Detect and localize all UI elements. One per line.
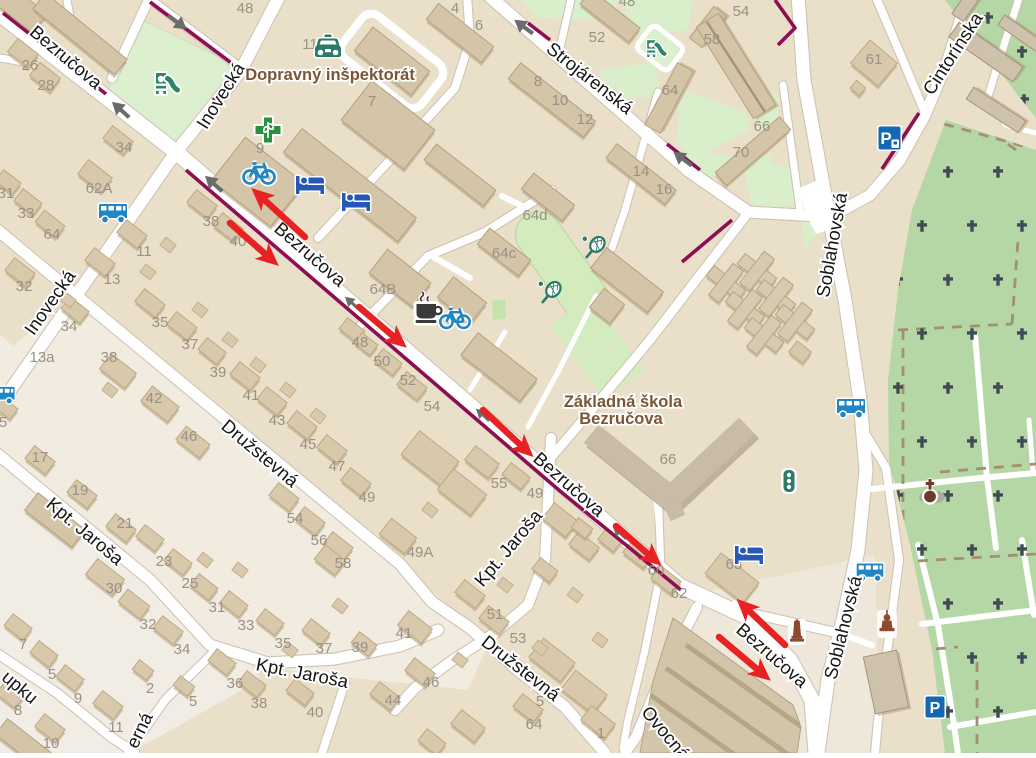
- svg-text:13: 13: [104, 271, 121, 288]
- svg-text:40: 40: [307, 704, 324, 721]
- svg-text:16: 16: [656, 181, 673, 198]
- svg-text:54: 54: [733, 3, 750, 20]
- svg-text:49: 49: [527, 485, 544, 502]
- svg-text:64d: 64d: [522, 207, 547, 224]
- svg-text:55: 55: [491, 475, 508, 492]
- svg-text:31: 31: [0, 185, 14, 202]
- svg-text:23: 23: [156, 553, 173, 570]
- svg-text:2: 2: [146, 680, 154, 697]
- svg-text:Dopravný inšpektorát: Dopravný inšpektorát: [245, 66, 415, 84]
- svg-text:12: 12: [577, 111, 594, 128]
- svg-text:37: 37: [316, 640, 333, 657]
- svg-text:39: 39: [352, 639, 369, 656]
- svg-text:41: 41: [243, 387, 260, 404]
- svg-text:28: 28: [38, 77, 55, 94]
- svg-text:49: 49: [359, 489, 376, 506]
- svg-text:52: 52: [589, 29, 606, 46]
- svg-text:36: 36: [227, 675, 244, 692]
- svg-text:38: 38: [101, 349, 118, 366]
- svg-text:14: 14: [633, 163, 650, 180]
- svg-text:32: 32: [16, 278, 33, 295]
- svg-text:58: 58: [704, 31, 721, 48]
- svg-text:35: 35: [152, 314, 169, 331]
- svg-text:30: 30: [106, 580, 123, 597]
- svg-text:32: 32: [140, 616, 157, 633]
- svg-text:5: 5: [48, 666, 56, 683]
- svg-text:33: 33: [238, 617, 255, 634]
- svg-text:26: 26: [22, 57, 39, 74]
- svg-text:43: 43: [269, 412, 286, 429]
- svg-text:35: 35: [275, 635, 292, 652]
- svg-text:Bezručova: Bezručova: [579, 410, 663, 428]
- svg-text:10: 10: [552, 92, 569, 109]
- svg-text:7: 7: [368, 93, 376, 110]
- svg-text:34: 34: [174, 641, 191, 658]
- svg-text:34: 34: [61, 318, 78, 335]
- svg-text:13a: 13a: [29, 349, 55, 366]
- svg-text:47: 47: [329, 458, 346, 475]
- svg-text:54: 54: [424, 398, 441, 415]
- svg-text:56: 56: [311, 532, 328, 549]
- svg-text:64B: 64B: [370, 281, 397, 298]
- svg-text:5: 5: [189, 693, 197, 710]
- svg-text:19: 19: [72, 482, 89, 499]
- svg-text:42: 42: [146, 390, 163, 407]
- svg-text:64: 64: [44, 226, 61, 243]
- svg-text:11: 11: [108, 719, 124, 736]
- svg-text:48: 48: [352, 334, 369, 351]
- svg-text:P: P: [930, 700, 941, 717]
- svg-text:38: 38: [203, 213, 220, 230]
- svg-text:7: 7: [19, 636, 27, 653]
- svg-text:6: 6: [475, 17, 483, 34]
- svg-text:34: 34: [116, 139, 133, 156]
- svg-text:17: 17: [32, 449, 49, 466]
- svg-text:5: 5: [0, 414, 7, 431]
- svg-text:66: 66: [660, 451, 677, 468]
- svg-text:38: 38: [251, 695, 268, 712]
- svg-text:48: 48: [619, 0, 636, 10]
- svg-text:66: 66: [754, 118, 771, 135]
- svg-text:64: 64: [526, 716, 543, 733]
- svg-text:58: 58: [335, 555, 352, 572]
- svg-text:61: 61: [866, 51, 883, 68]
- svg-text:64: 64: [662, 82, 679, 99]
- svg-text:10: 10: [43, 735, 60, 752]
- svg-text:39: 39: [210, 364, 227, 381]
- svg-text:62A: 62A: [86, 180, 113, 197]
- svg-text:8: 8: [534, 73, 542, 90]
- svg-text:45: 45: [300, 436, 317, 453]
- svg-text:41: 41: [396, 625, 413, 642]
- svg-text:31: 31: [209, 599, 226, 616]
- svg-text:52: 52: [400, 372, 417, 389]
- svg-text:33: 33: [18, 205, 35, 222]
- svg-text:48: 48: [237, 0, 254, 17]
- svg-text:46: 46: [423, 674, 440, 691]
- svg-text:51: 51: [487, 606, 504, 623]
- svg-text:25: 25: [182, 575, 199, 592]
- svg-text:21: 21: [117, 515, 134, 532]
- svg-text:44: 44: [385, 692, 402, 709]
- svg-text:49A: 49A: [407, 544, 434, 561]
- svg-text:50: 50: [374, 353, 391, 370]
- svg-text:4: 4: [451, 0, 459, 17]
- svg-text:9: 9: [74, 690, 82, 707]
- svg-text:1: 1: [597, 725, 605, 742]
- svg-text:64c: 64c: [492, 245, 517, 262]
- svg-text:37: 37: [182, 336, 199, 353]
- svg-text:8: 8: [14, 702, 22, 719]
- svg-text:Základná škola: Základná škola: [564, 393, 683, 411]
- svg-text:53: 53: [510, 630, 527, 647]
- svg-text:70: 70: [733, 144, 750, 161]
- svg-text:P: P: [880, 129, 891, 148]
- svg-text:54: 54: [287, 510, 304, 527]
- svg-text:62: 62: [671, 585, 688, 602]
- svg-text:60: 60: [648, 562, 665, 579]
- svg-text:46: 46: [181, 428, 198, 445]
- svg-text:11: 11: [136, 243, 152, 260]
